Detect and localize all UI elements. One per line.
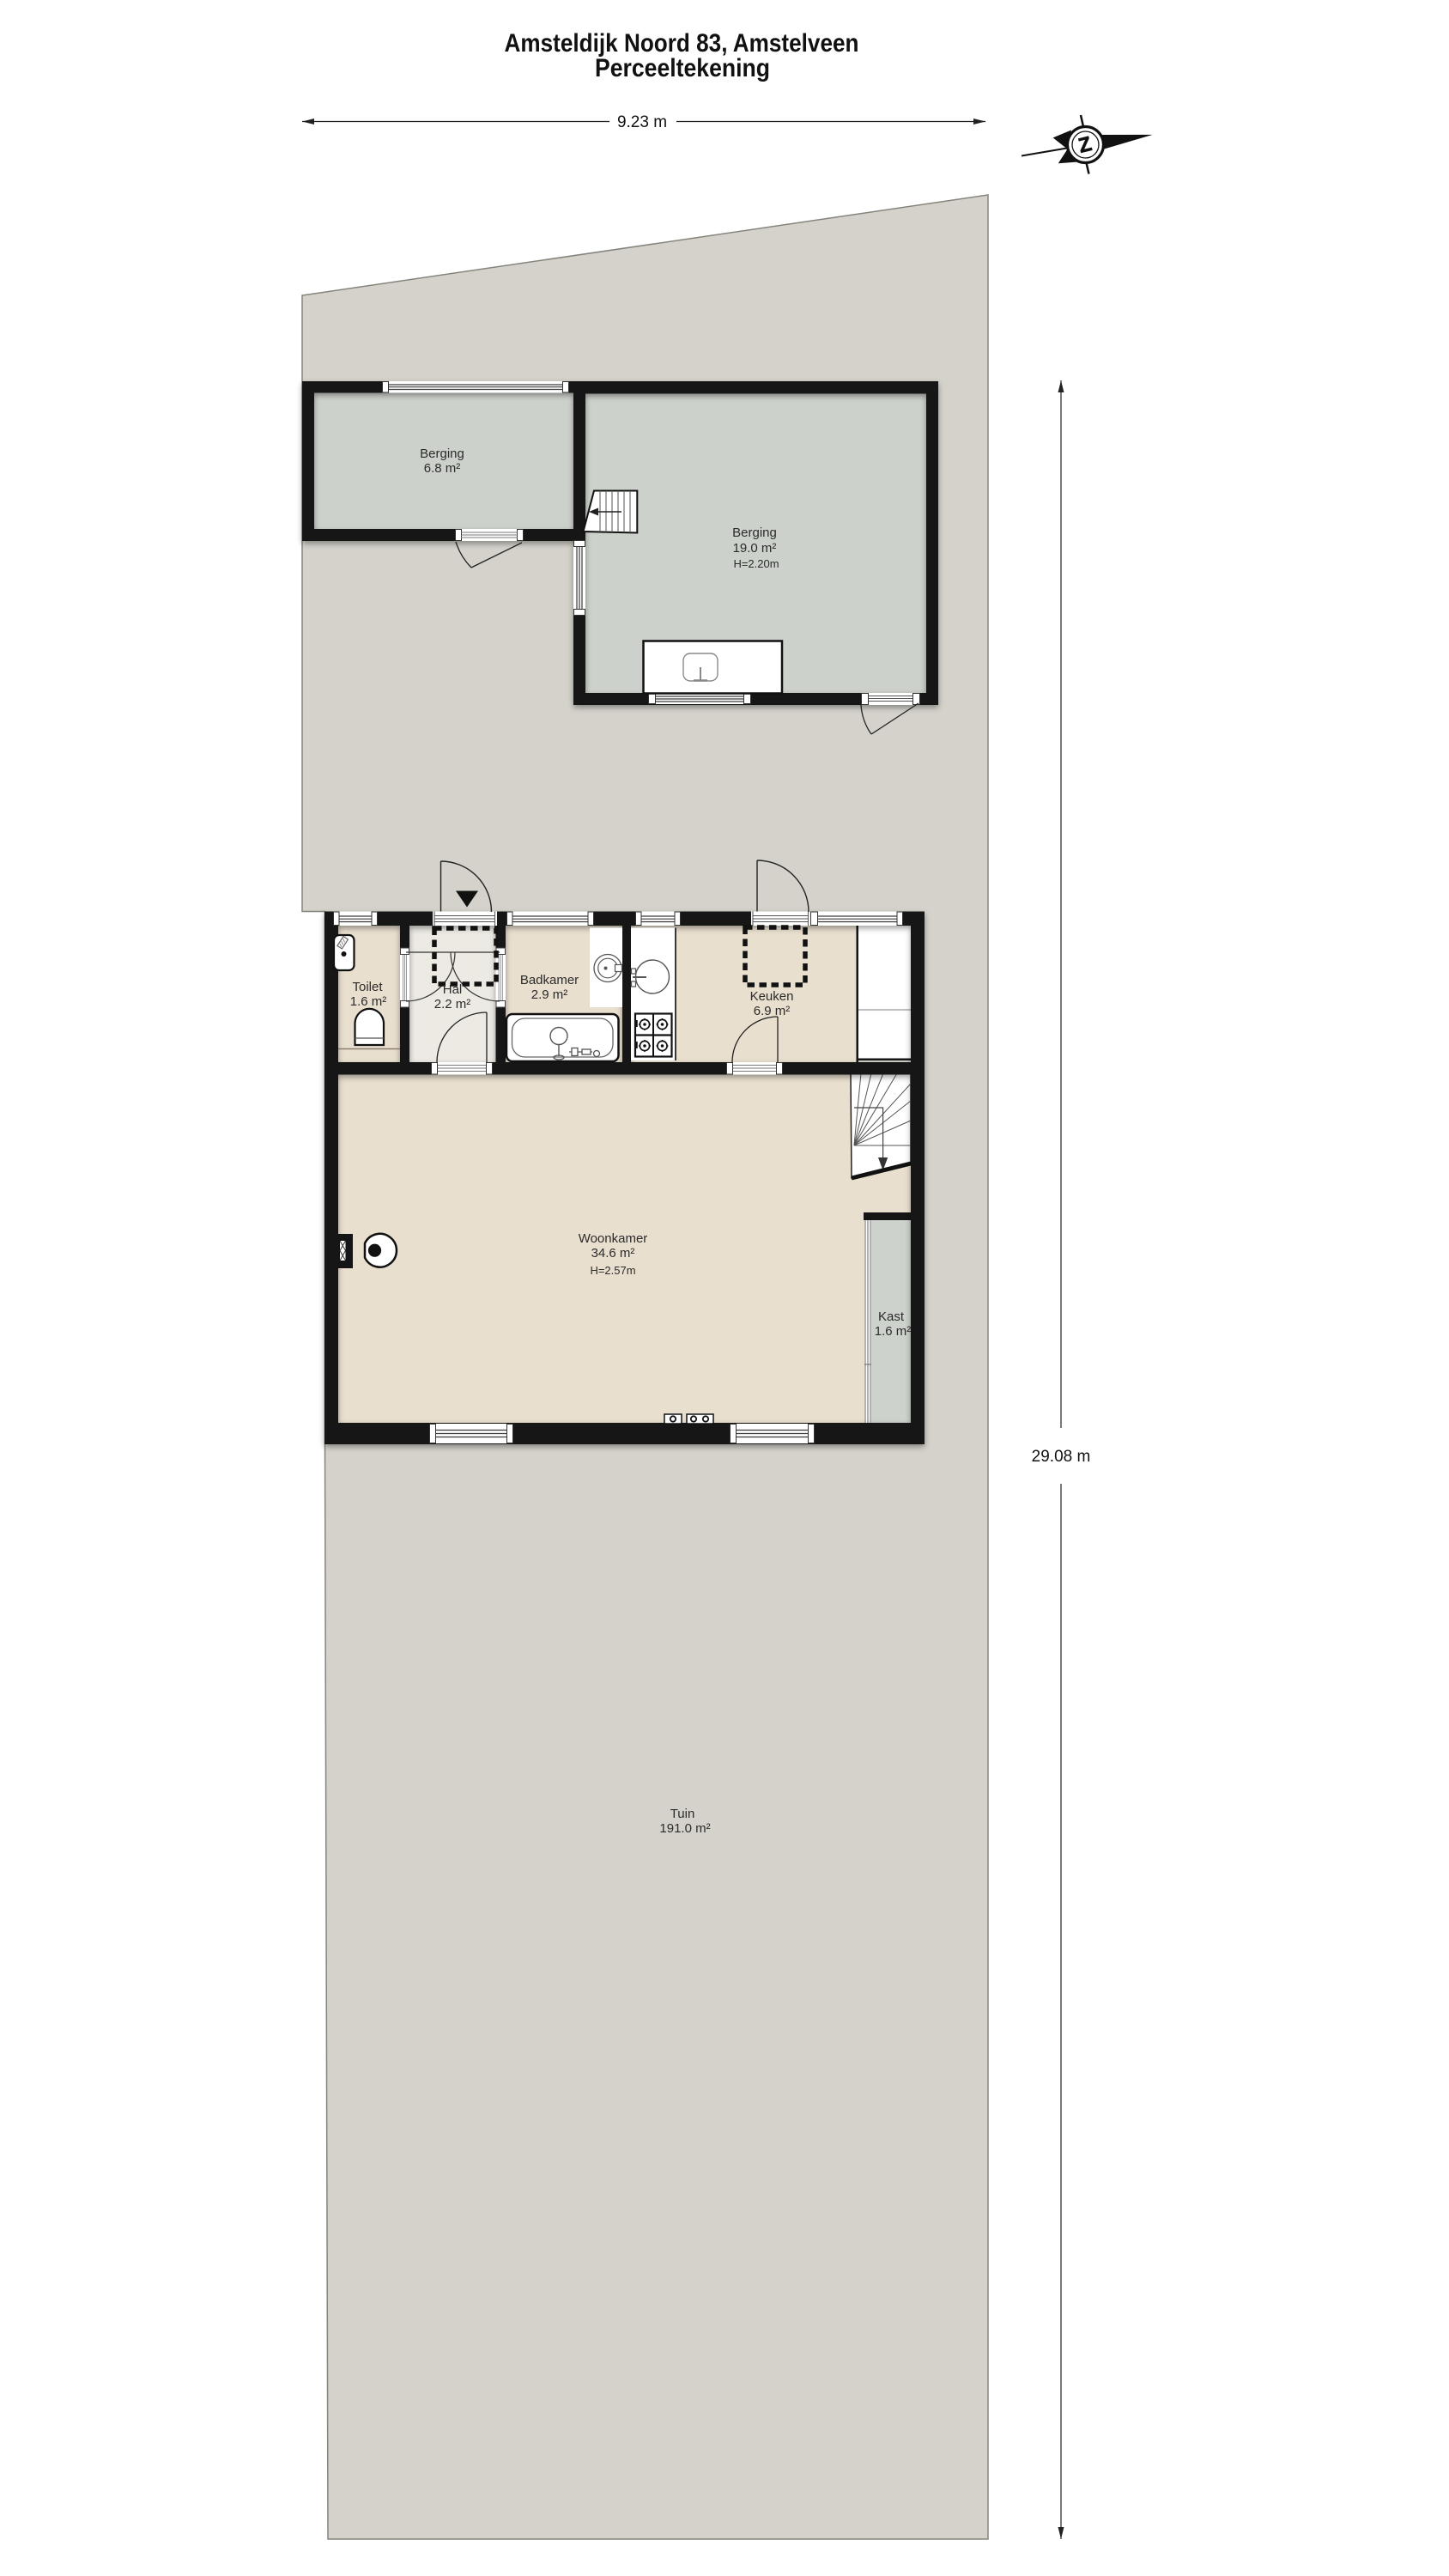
svg-text:6.9 m²: 6.9 m² [754,1004,791,1018]
svg-text:Badkamer: Badkamer [520,973,579,987]
svg-text:Tuin: Tuin [670,1807,695,1821]
svg-text:34.6 m²: 34.6 m² [591,1246,635,1261]
svg-text:6.8 m²: 6.8 m² [424,461,461,476]
svg-text:1.6 m²: 1.6 m² [875,1324,912,1339]
svg-text:Hal: Hal [443,982,463,997]
svg-text:Berging: Berging [732,526,777,540]
svg-text:Toilet: Toilet [352,980,383,994]
svg-text:Perceeltekening: Perceeltekening [595,54,770,82]
svg-text:29.08 m: 29.08 m [1032,1448,1091,1466]
svg-text:191.0 m²: 191.0 m² [659,1821,710,1836]
svg-text:2.9 m²: 2.9 m² [531,987,568,1002]
svg-text:2.2 m²: 2.2 m² [434,997,471,1012]
svg-text:1.6 m²: 1.6 m² [350,994,387,1009]
svg-text:Berging: Berging [420,447,464,461]
svg-text:H=2.20m: H=2.20m [733,557,779,570]
svg-text:Kast: Kast [878,1309,905,1324]
svg-text:Keuken: Keuken [750,989,794,1004]
svg-text:9.23 m: 9.23 m [617,113,667,131]
svg-text:19.0 m²: 19.0 m² [733,541,777,556]
svg-text:Woonkamer: Woonkamer [579,1231,648,1246]
svg-text:H=2.57m: H=2.57m [590,1264,635,1277]
